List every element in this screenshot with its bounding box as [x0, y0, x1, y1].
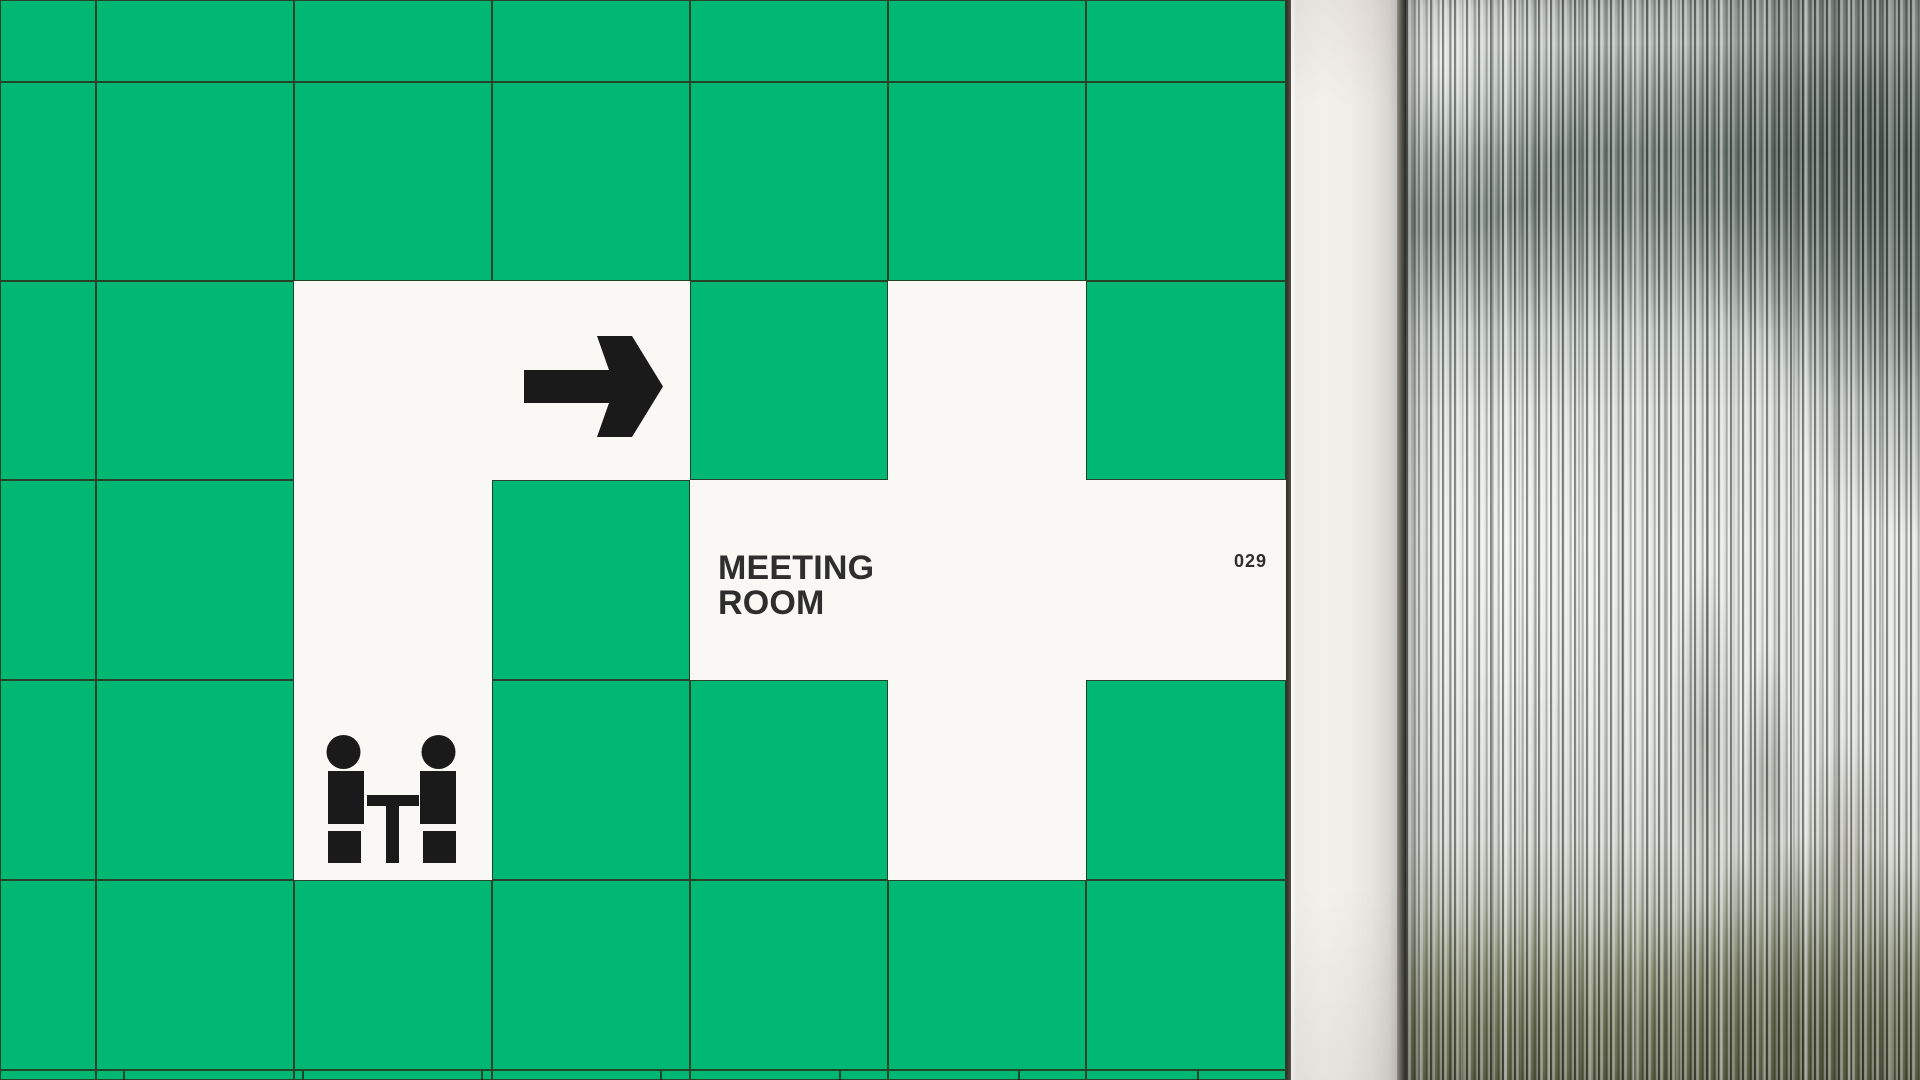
fluted-glass-partition	[1406, 0, 1920, 1080]
tile-r1-c6	[1086, 82, 1286, 281]
tile-r1-c5	[888, 82, 1086, 281]
tile-r2-c4	[690, 281, 888, 480]
glass-frame-edge	[1397, 0, 1406, 1080]
tile-r2-c1	[96, 281, 294, 480]
tile-r1-c1	[96, 82, 294, 281]
tile-r4-c4	[690, 680, 888, 880]
tile-r3-c3	[492, 480, 690, 680]
tile-r5-c6	[1086, 880, 1286, 1070]
tile-r2-c6	[1086, 281, 1286, 480]
room-number: 029	[1086, 551, 1267, 571]
tile-r0-c1	[96, 0, 294, 82]
tile-r0-c0	[0, 0, 96, 82]
tile-r1-c4	[690, 82, 888, 281]
tile-r5-c5	[888, 880, 1086, 1070]
tile-r4-c5	[888, 680, 1086, 880]
tile-r0-c4	[690, 0, 888, 82]
tile-wall	[0, 0, 1286, 1080]
room-label: MEETING ROOM	[718, 551, 874, 621]
tile-r4-c1	[96, 680, 294, 880]
tile-r3-c2	[294, 480, 492, 680]
tile-r0-c5	[888, 0, 1086, 82]
tile-r5-c0	[0, 880, 96, 1070]
tile-r1-c3	[492, 82, 690, 281]
tile-r2-c0	[0, 281, 96, 480]
arrow-right-icon	[524, 336, 663, 437]
tile-r3-c6	[1086, 480, 1286, 680]
tile-r5-c2	[294, 880, 492, 1070]
tile-r5-c1	[96, 880, 294, 1070]
tile-r4-c6	[1086, 680, 1286, 880]
tile-r1-c2	[294, 82, 492, 281]
tile-r0-c6	[1086, 0, 1286, 82]
wall-return-surface	[1291, 0, 1397, 1080]
tile-r3-c5	[888, 480, 1086, 680]
tile-r2-c2	[294, 281, 492, 480]
meeting-people-icon	[326, 729, 458, 865]
meeting-room-sign-photo: MEETING ROOM 029	[0, 0, 1920, 1080]
tile-r5-c4	[690, 880, 888, 1070]
tile-r4-c0	[0, 680, 96, 880]
tile-r3-c0	[0, 480, 96, 680]
tile-r2-c5	[888, 281, 1086, 480]
tile-r5-c3	[492, 880, 690, 1070]
tile-r0-c2	[294, 0, 492, 82]
tile-r0-c3	[492, 0, 690, 82]
bottom-tile-row-grout	[0, 1071, 1286, 1080]
tile-r1-c0	[0, 82, 96, 281]
tile-r3-c1	[96, 480, 294, 680]
tile-r4-c3	[492, 680, 690, 880]
